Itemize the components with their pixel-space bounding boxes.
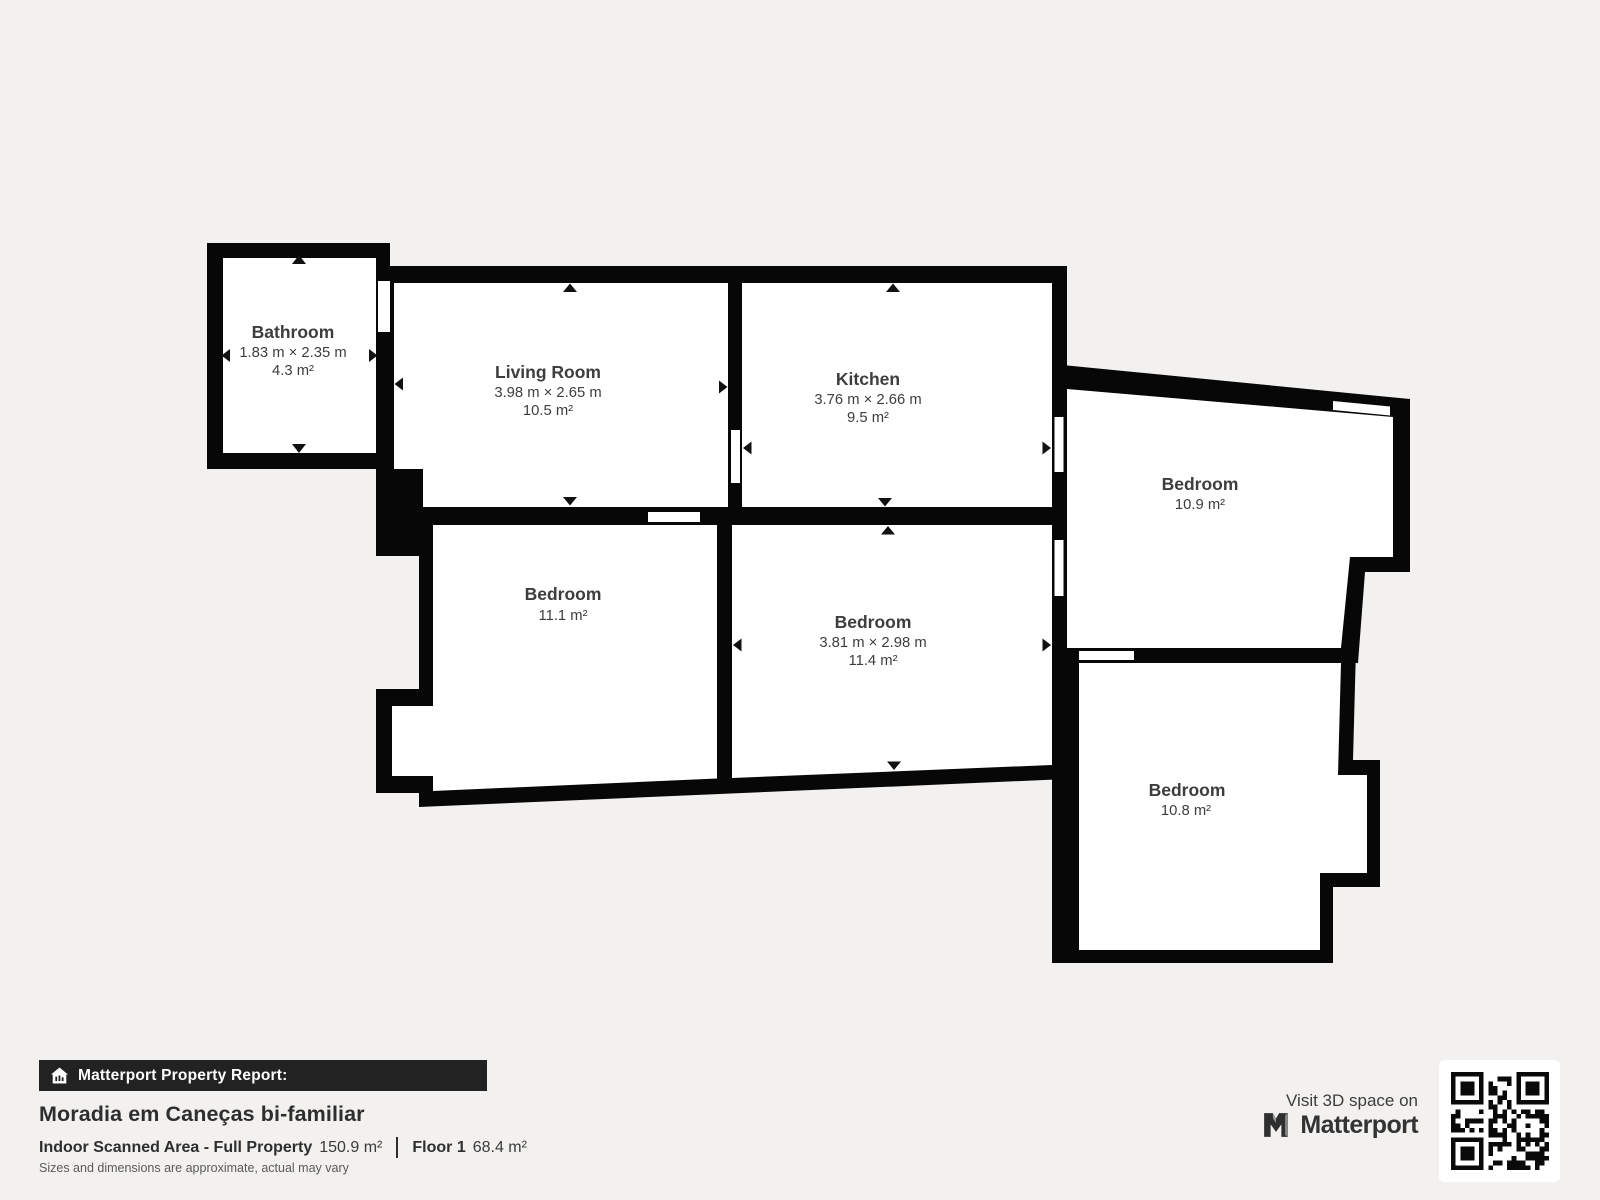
bedroom-left-floor: [392, 525, 717, 791]
room-interiors: [223, 258, 1393, 950]
room-area: 10.5 m²: [523, 403, 573, 419]
room-name: Bedroom: [1162, 474, 1239, 494]
center-right-bedroom-door: [1055, 540, 1064, 596]
room-area: 4.3 m²: [272, 363, 314, 379]
floor-plan: Bathroom 1.83 m × 2.35 m 4.3 m² Living R…: [0, 0, 1600, 1200]
room-dimensions: 1.83 m × 2.35 m: [239, 345, 346, 361]
scanned-area-value: 150.9 m²: [319, 1139, 382, 1157]
page: { "plan": { "rooms": [ {"name": "Bathroo…: [0, 0, 1600, 1200]
room-dimensions: 3.98 m × 2.65 m: [494, 385, 601, 401]
report-bar: Matterport Property Report:: [39, 1060, 487, 1091]
room-area: 10.9 m²: [1175, 497, 1225, 513]
house-report-icon: [51, 1067, 68, 1084]
bathroom-door: [378, 281, 390, 332]
living-kitchen-door: [731, 430, 740, 483]
room-name: Bedroom: [525, 584, 602, 604]
area-info-line: Indoor Scanned Area - Full Property 150.…: [39, 1137, 527, 1158]
qr-code: [1439, 1060, 1560, 1182]
bedroom-center-floor: [732, 525, 1052, 778]
matterport-brand: Matterport: [1160, 1110, 1418, 1140]
room-area: 10.8 m²: [1161, 803, 1211, 819]
room-name: Bathroom: [252, 322, 335, 342]
floor-label: Floor 1: [412, 1139, 465, 1157]
qr-code-pattern: [1451, 1072, 1549, 1170]
scanned-area-label: Indoor Scanned Area - Full Property: [39, 1139, 312, 1157]
room-name: Bedroom: [1149, 780, 1226, 800]
room-dimensions: 3.76 m × 2.66 m: [814, 392, 921, 408]
report-bar-label: Matterport Property Report:: [78, 1067, 288, 1085]
info-separator: [396, 1137, 398, 1158]
matterport-wordmark: Matterport: [1300, 1111, 1418, 1140]
floor-area-value: 68.4 m²: [473, 1139, 527, 1157]
room-area: 9.5 m²: [847, 410, 889, 426]
kitchen-bedroom-door: [1055, 417, 1064, 472]
bedroom-bottom-window: [1079, 651, 1134, 660]
matterport-logo-icon: [1261, 1110, 1291, 1140]
disclaimer-text: Sizes and dimensions are approximate, ac…: [39, 1161, 349, 1175]
room-name: Kitchen: [836, 369, 900, 389]
room-name: Bedroom: [835, 612, 912, 632]
room-area: 11.1 m²: [538, 608, 587, 624]
bedroom-right-floor: [1067, 389, 1393, 648]
room-area: 11.4 m²: [848, 653, 897, 669]
room-name: Living Room: [495, 362, 601, 382]
property-title: Moradia em Caneças bi-familiar: [39, 1102, 365, 1127]
room-dimensions: 3.81 m × 2.98 m: [819, 635, 926, 651]
living-bedroom-door: [648, 512, 700, 522]
visit-3d-text: Visit 3D space on: [1160, 1091, 1418, 1111]
